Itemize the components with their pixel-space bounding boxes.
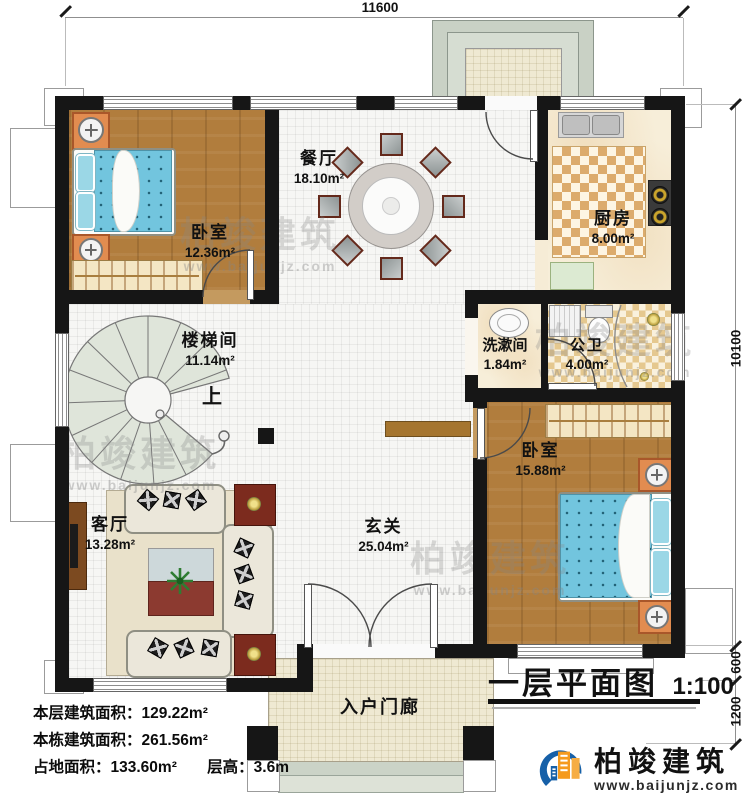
room-label-stairwell: 楼梯间 11.14m² xyxy=(150,330,270,370)
table-plant-icon xyxy=(247,497,261,511)
sofa-cushion xyxy=(163,491,182,510)
wall-segment xyxy=(465,304,478,318)
stove-burner xyxy=(651,186,669,204)
wall-segment xyxy=(465,388,685,402)
clock-icon xyxy=(79,238,103,262)
dimension-connector xyxy=(686,104,735,105)
room-label-dining: 餐厅 18.10m² xyxy=(277,148,361,188)
wall-segment xyxy=(55,96,69,333)
bed-pillow xyxy=(651,549,671,595)
stat-line: 本层建筑面积：129.22m² xyxy=(33,700,289,727)
washbasin-inner xyxy=(497,314,521,332)
room-label-washroom: 洗漱间 1.84m² xyxy=(468,336,542,373)
dimension-right-10100: 10100 xyxy=(729,315,744,383)
plan-scale: 1:100 xyxy=(672,673,733,700)
wall-segment xyxy=(69,290,203,304)
wall-segment xyxy=(537,96,560,110)
room-label-foyer: 玄关 25.04m² xyxy=(336,516,431,556)
dimension-connector xyxy=(65,18,66,86)
room-label-bedroom1: 卧室 12.36m² xyxy=(165,222,255,262)
shower-tray xyxy=(549,305,581,337)
wall-segment xyxy=(435,644,517,658)
room-label-bathroom: 公卫 4.00m² xyxy=(550,336,624,373)
window xyxy=(250,96,357,110)
bed-pillow xyxy=(76,192,95,230)
clock-icon xyxy=(645,463,669,487)
wall-segment xyxy=(458,96,485,110)
wall-segment xyxy=(55,427,69,692)
door-leaf xyxy=(477,408,485,460)
sofa-cushion xyxy=(201,639,220,658)
wall-segment xyxy=(297,644,313,692)
floor-drain xyxy=(640,372,649,381)
door-threshold xyxy=(485,96,537,110)
window xyxy=(671,313,685,381)
wardrobe-rod xyxy=(75,275,200,277)
bed-pillow xyxy=(76,154,95,192)
window xyxy=(517,644,643,658)
entry-threshold xyxy=(305,644,435,658)
area-stats: 本层建筑面积：129.22m² 本栋建筑面积：261.56m² 占地面积：133… xyxy=(33,700,289,781)
coffee-table-base xyxy=(148,581,214,616)
pillar-base xyxy=(463,760,496,792)
porch-step xyxy=(278,775,464,793)
door-leaf xyxy=(430,584,438,648)
stat-line: 占地面积：133.60m² 层高：3.6m xyxy=(33,754,289,781)
brand-text: 柏竣建筑 www.baijunjz.com xyxy=(594,747,739,794)
room-label-kitchen: 厨房 8.00m² xyxy=(573,208,653,248)
dining-chair xyxy=(380,133,403,156)
brand-website: www.baijunjz.com xyxy=(594,777,739,793)
stat-floor-height: 层高：3.6m xyxy=(207,759,289,776)
porch-pillar xyxy=(463,726,494,760)
window xyxy=(103,96,233,110)
room-label-bedroom2: 卧室 15.88m² xyxy=(493,440,588,480)
wall-segment xyxy=(541,304,548,388)
wall-segment xyxy=(233,96,250,110)
clock-icon xyxy=(78,117,104,143)
wall-segment xyxy=(55,678,93,692)
floor-plan-canvas: 卧室 12.36m² 餐厅 18.10m² 厨房 8.00m² 楼梯间 11.1… xyxy=(0,0,750,808)
brand-name: 柏竣建筑 xyxy=(594,747,739,778)
door-leaf xyxy=(304,584,312,648)
exterior-ledge xyxy=(10,128,58,208)
wall-segment xyxy=(473,458,487,644)
stair-up-label: 上 xyxy=(202,380,222,409)
shower-head xyxy=(647,313,660,326)
stove-burner xyxy=(651,208,669,226)
baijun-logo-icon xyxy=(538,742,586,798)
wardrobe xyxy=(71,260,203,292)
clock-icon xyxy=(645,605,669,629)
nightstand xyxy=(638,600,674,634)
dimension-line xyxy=(65,17,683,18)
dimension-top: 11600 xyxy=(325,0,435,15)
title-underline xyxy=(488,699,700,704)
door-threshold xyxy=(203,290,250,304)
coffee-table-glass xyxy=(148,548,214,583)
dining-chair xyxy=(442,195,465,218)
console-table xyxy=(385,421,471,437)
dining-table-center xyxy=(382,197,400,215)
door-leaf xyxy=(548,383,597,390)
wardrobe-rod xyxy=(549,420,670,422)
nightstand xyxy=(638,458,674,492)
wall-segment xyxy=(465,290,685,304)
wall-segment xyxy=(671,381,685,658)
dining-chair xyxy=(380,257,403,280)
sink-basin xyxy=(562,115,590,135)
room-label-living: 客厅 13.28m² xyxy=(64,514,156,554)
stat-line: 本栋建筑面积：261.56m² xyxy=(33,727,289,754)
title-block: 一层平面图 1:100 xyxy=(488,658,734,703)
window xyxy=(394,96,458,110)
table-plant-icon xyxy=(247,647,261,661)
brand-logo: 柏竣建筑 www.baijunjz.com xyxy=(538,742,739,798)
wall-segment xyxy=(250,290,279,304)
bed-blanket xyxy=(618,494,650,598)
door-leaf xyxy=(530,110,538,162)
wall-segment xyxy=(265,110,279,290)
title-underline-thin xyxy=(492,707,696,709)
dimension-connector xyxy=(683,18,684,86)
window xyxy=(560,96,645,110)
rear-porch-floor xyxy=(465,48,562,100)
sink-basin xyxy=(592,115,620,135)
dining-chair xyxy=(318,195,341,218)
wall-segment xyxy=(357,96,394,110)
wardrobe xyxy=(545,404,673,438)
room-label-porch: 入户门廊 xyxy=(318,696,442,719)
wall-segment xyxy=(643,644,685,658)
plan-title: 一层平面图 xyxy=(488,666,658,701)
wall-segment xyxy=(671,96,685,313)
structural-column xyxy=(258,428,274,444)
exterior-ledge xyxy=(10,444,58,522)
bed-pillow xyxy=(651,499,671,545)
dimension-tick xyxy=(59,5,71,17)
window xyxy=(55,333,69,427)
stat-land-area: 占地面积：133.60m² xyxy=(33,759,177,776)
door-threshold xyxy=(535,240,548,290)
nightstand xyxy=(72,112,110,150)
dimension-tick xyxy=(677,5,689,17)
kitchen-mat xyxy=(550,262,594,290)
window xyxy=(93,678,227,692)
